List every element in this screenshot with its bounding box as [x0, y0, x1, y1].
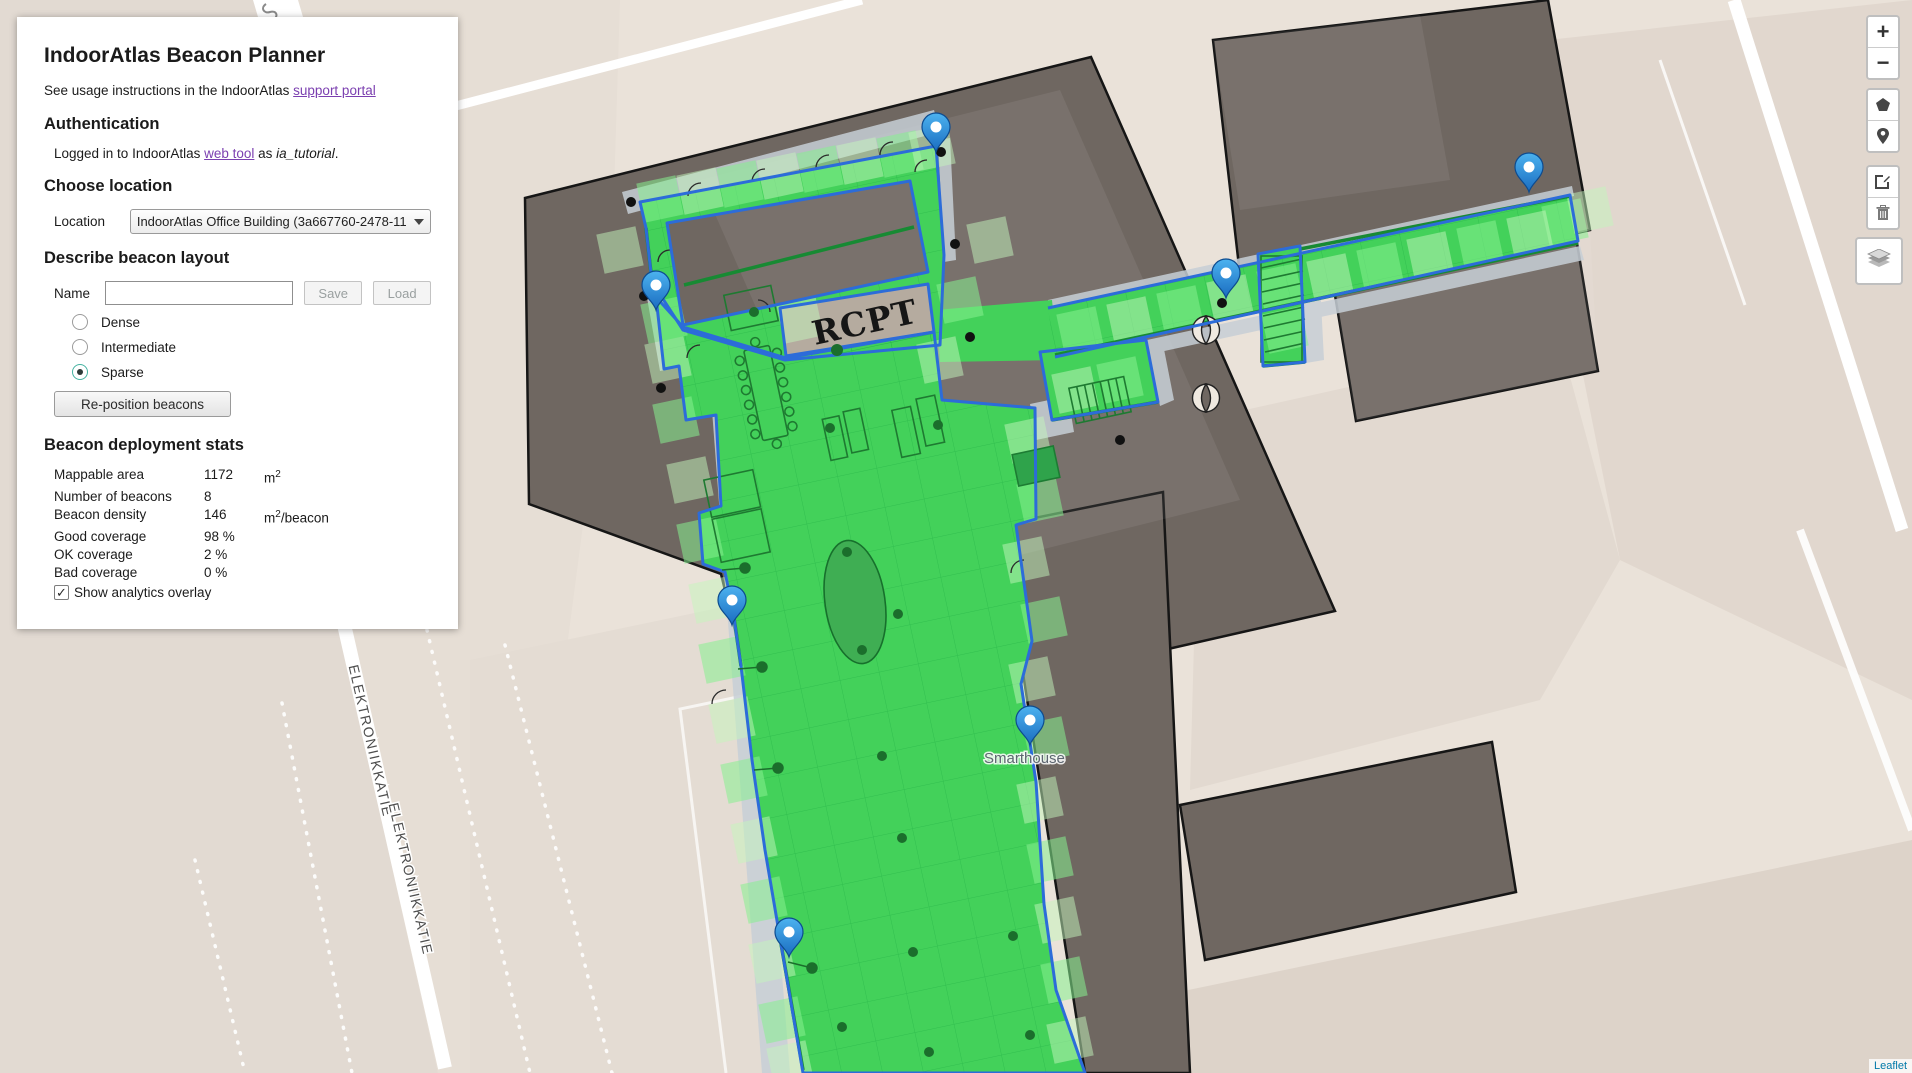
radio-circle-intermediate[interactable] — [72, 339, 88, 355]
stat-row-mappable-area: Mappable area 1172 m2 — [54, 466, 431, 488]
radio-label-dense: Dense — [101, 315, 140, 330]
web-tool-link[interactable]: web tool — [204, 146, 254, 161]
smarthouse-label: Smarthouse — [984, 750, 1065, 767]
stat-row-beacon-count: Number of beacons 8 — [54, 488, 431, 506]
draw-polygon-button[interactable] — [1868, 90, 1898, 121]
deployment-stats: Mappable area 1172 m2 Number of beacons … — [44, 466, 431, 582]
stat-row-beacon-density: Beacon density 146 m2/beacon — [54, 506, 431, 528]
choose-location-header: Choose location — [44, 177, 431, 196]
polygon-icon — [1875, 97, 1891, 113]
save-button[interactable]: Save — [304, 281, 362, 305]
load-button[interactable]: Load — [373, 281, 431, 305]
login-period: . — [335, 146, 339, 161]
map-attribution: Leaflet — [1869, 1059, 1912, 1073]
layout-name-input[interactable] — [105, 281, 293, 305]
radio-dense[interactable]: Dense — [44, 314, 431, 330]
zoom-in-button[interactable]: + — [1868, 17, 1898, 48]
delete-layers-button[interactable] — [1868, 198, 1898, 228]
location-select[interactable]: IndoorAtlas Office Building (3a667760-24… — [130, 209, 431, 234]
edit-icon — [1875, 174, 1891, 190]
trash-icon — [1876, 205, 1890, 221]
login-as: as — [254, 146, 276, 161]
marker-icon — [1876, 128, 1890, 144]
beacon-planner-app: ELEKTRONIIKKATIE ELEKTRONIIKKATIE — [0, 0, 1912, 1073]
reposition-beacons-button[interactable]: Re-position beacons — [54, 391, 231, 417]
planner-panel: IndoorAtlas Beacon Planner See usage ins… — [17, 17, 458, 629]
leaflet-attribution-link[interactable]: Leaflet — [1874, 1060, 1907, 1072]
layout-name-row: Name Save Load — [44, 281, 431, 305]
beacon-layout-header: Describe beacon layout — [44, 249, 431, 268]
zoom-control: + − — [1866, 15, 1900, 80]
analytics-overlay-label: Show analytics overlay — [74, 585, 211, 600]
chevron-down-icon — [414, 219, 424, 225]
support-portal-link[interactable]: support portal — [293, 83, 376, 98]
authentication-header: Authentication — [44, 115, 431, 134]
radio-label-sparse: Sparse — [101, 365, 144, 380]
stat-row-bad-coverage: Bad coverage 0 % — [54, 564, 431, 582]
stat-row-ok-coverage: OK coverage 2 % — [54, 546, 431, 564]
analytics-overlay-checkbox[interactable]: ✓ — [54, 585, 69, 600]
usage-text: See usage instructions in the IndoorAtla… — [44, 83, 293, 98]
location-label: Location — [54, 214, 130, 229]
login-text: Logged in to IndoorAtlas — [54, 146, 204, 161]
edit-control — [1866, 165, 1900, 230]
radio-circle-sparse[interactable] — [72, 364, 88, 380]
radio-sparse[interactable]: Sparse — [44, 364, 431, 380]
login-username: ia_tutorial — [276, 146, 335, 161]
add-beacon-button[interactable] — [1868, 121, 1898, 151]
draw-control — [1866, 88, 1900, 153]
edit-layers-button[interactable] — [1868, 167, 1898, 198]
radio-intermediate[interactable]: Intermediate — [44, 339, 431, 355]
login-status: Logged in to IndoorAtlas web tool as ia_… — [44, 146, 431, 161]
page-title: IndoorAtlas Beacon Planner — [44, 44, 431, 68]
stat-row-good-coverage: Good coverage 98 % — [54, 528, 431, 546]
zoom-out-button[interactable]: − — [1868, 48, 1898, 78]
usage-instructions: See usage instructions in the IndoorAtla… — [44, 83, 431, 98]
radio-label-intermediate: Intermediate — [101, 340, 176, 355]
deployment-stats-header: Beacon deployment stats — [44, 436, 431, 455]
location-row: Location IndoorAtlas Office Building (3a… — [44, 209, 431, 234]
layers-control-button[interactable] — [1855, 237, 1903, 285]
layers-icon — [1866, 249, 1892, 273]
analytics-overlay-row: ✓ Show analytics overlay — [44, 585, 431, 600]
radio-circle-dense[interactable] — [72, 314, 88, 330]
location-select-value: IndoorAtlas Office Building (3a667760-24… — [137, 214, 412, 229]
name-label: Name — [54, 286, 105, 301]
